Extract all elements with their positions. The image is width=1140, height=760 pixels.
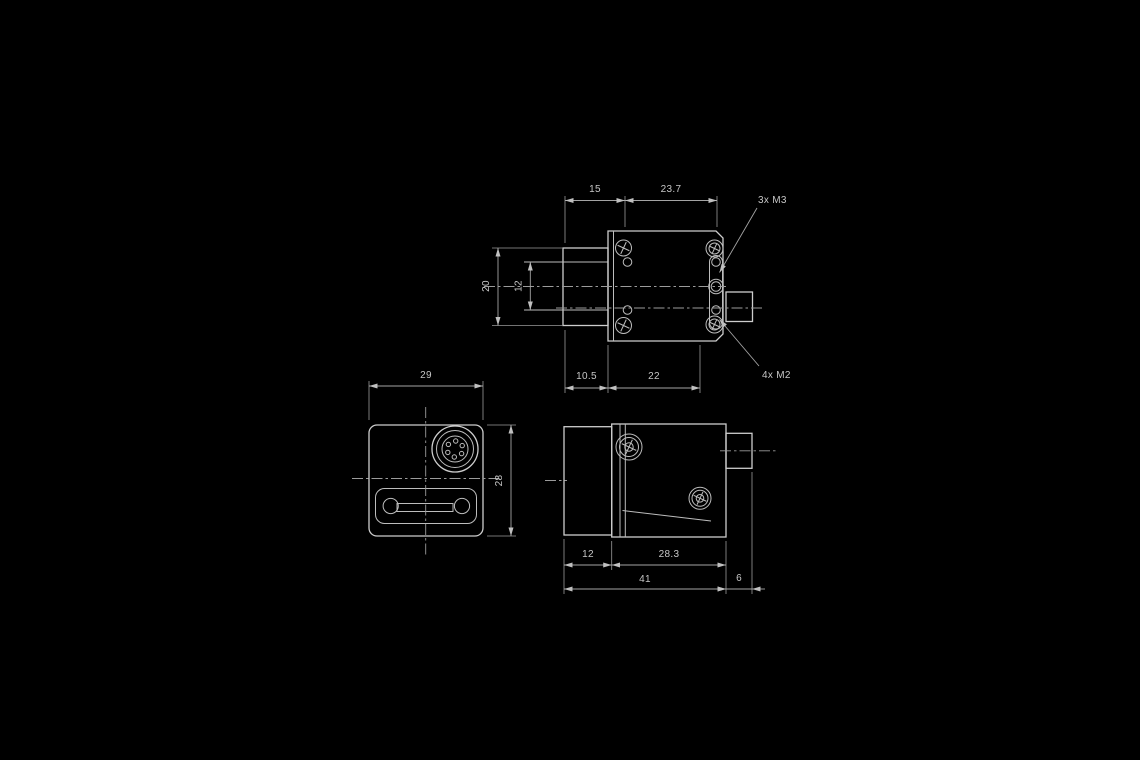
dimension-height: 28: [487, 425, 516, 536]
dim-label-front-section: 15: [589, 184, 601, 195]
phillips-screw-icon: [615, 239, 632, 256]
camera-body: [612, 424, 726, 537]
m2-hole: [623, 306, 632, 315]
dim-label-lens-section: 10.5: [576, 371, 597, 382]
dimension-top: 15 23.7: [565, 184, 717, 243]
dim-label-lens-length: 12: [582, 549, 594, 560]
lens-barrel: [564, 427, 612, 535]
dim-label-width: 29: [420, 370, 432, 381]
top-view: 15 23.7 10.5 22 20 12 3x M3: [481, 184, 791, 393]
led-hole: [383, 498, 398, 513]
thread-callout-m2: 4x M2: [720, 320, 791, 382]
dimension-row-2: 41 6: [564, 573, 765, 589]
dim-label-body-length: 28.3: [659, 549, 680, 560]
m2-hole: [712, 306, 721, 315]
m2-hole: [712, 258, 721, 267]
phillips-screw-icon: [615, 317, 632, 334]
dim-label-total-length: 41: [639, 574, 651, 585]
dimension-row-1: 12 28.3: [564, 472, 752, 594]
dimensional-drawing: 15 23.7 10.5 22 20 12 3x M3: [0, 0, 1140, 760]
dimension-bottom: 10.5 22: [565, 330, 700, 393]
dim-label-rear-section: 22: [648, 371, 660, 382]
dim-label-height: 28: [494, 475, 505, 487]
phillips-screw-icon: [706, 316, 723, 333]
phillips-screw-icon: [616, 434, 642, 460]
thread-label-m2: 4x M2: [762, 370, 791, 381]
drawing-canvas: 15 23.7 10.5 22 20 12 3x M3: [0, 0, 1140, 760]
thread-callout-m3: 3x M3: [720, 195, 787, 273]
phillips-screw-icon: [689, 487, 711, 509]
thread-label-m3: 3x M3: [758, 195, 787, 206]
dim-label-mount-span: 23.7: [661, 184, 682, 195]
dim-label-inner-spacing: 12: [514, 280, 525, 292]
side-view: 12 28.3 41 6: [545, 424, 777, 594]
usb-connector: [726, 292, 753, 322]
slot: [397, 504, 453, 512]
dim-label-connector-length: 6: [736, 573, 742, 584]
dim-label-outer-spacing: 20: [481, 280, 492, 292]
led-hole: [454, 498, 469, 513]
connector-pins: [446, 439, 465, 459]
phillips-screw-icon: [706, 240, 723, 257]
m2-hole: [623, 258, 632, 267]
circular-connector: [432, 426, 478, 472]
front-view: 29 28: [352, 370, 516, 556]
label-edge: [623, 511, 712, 522]
